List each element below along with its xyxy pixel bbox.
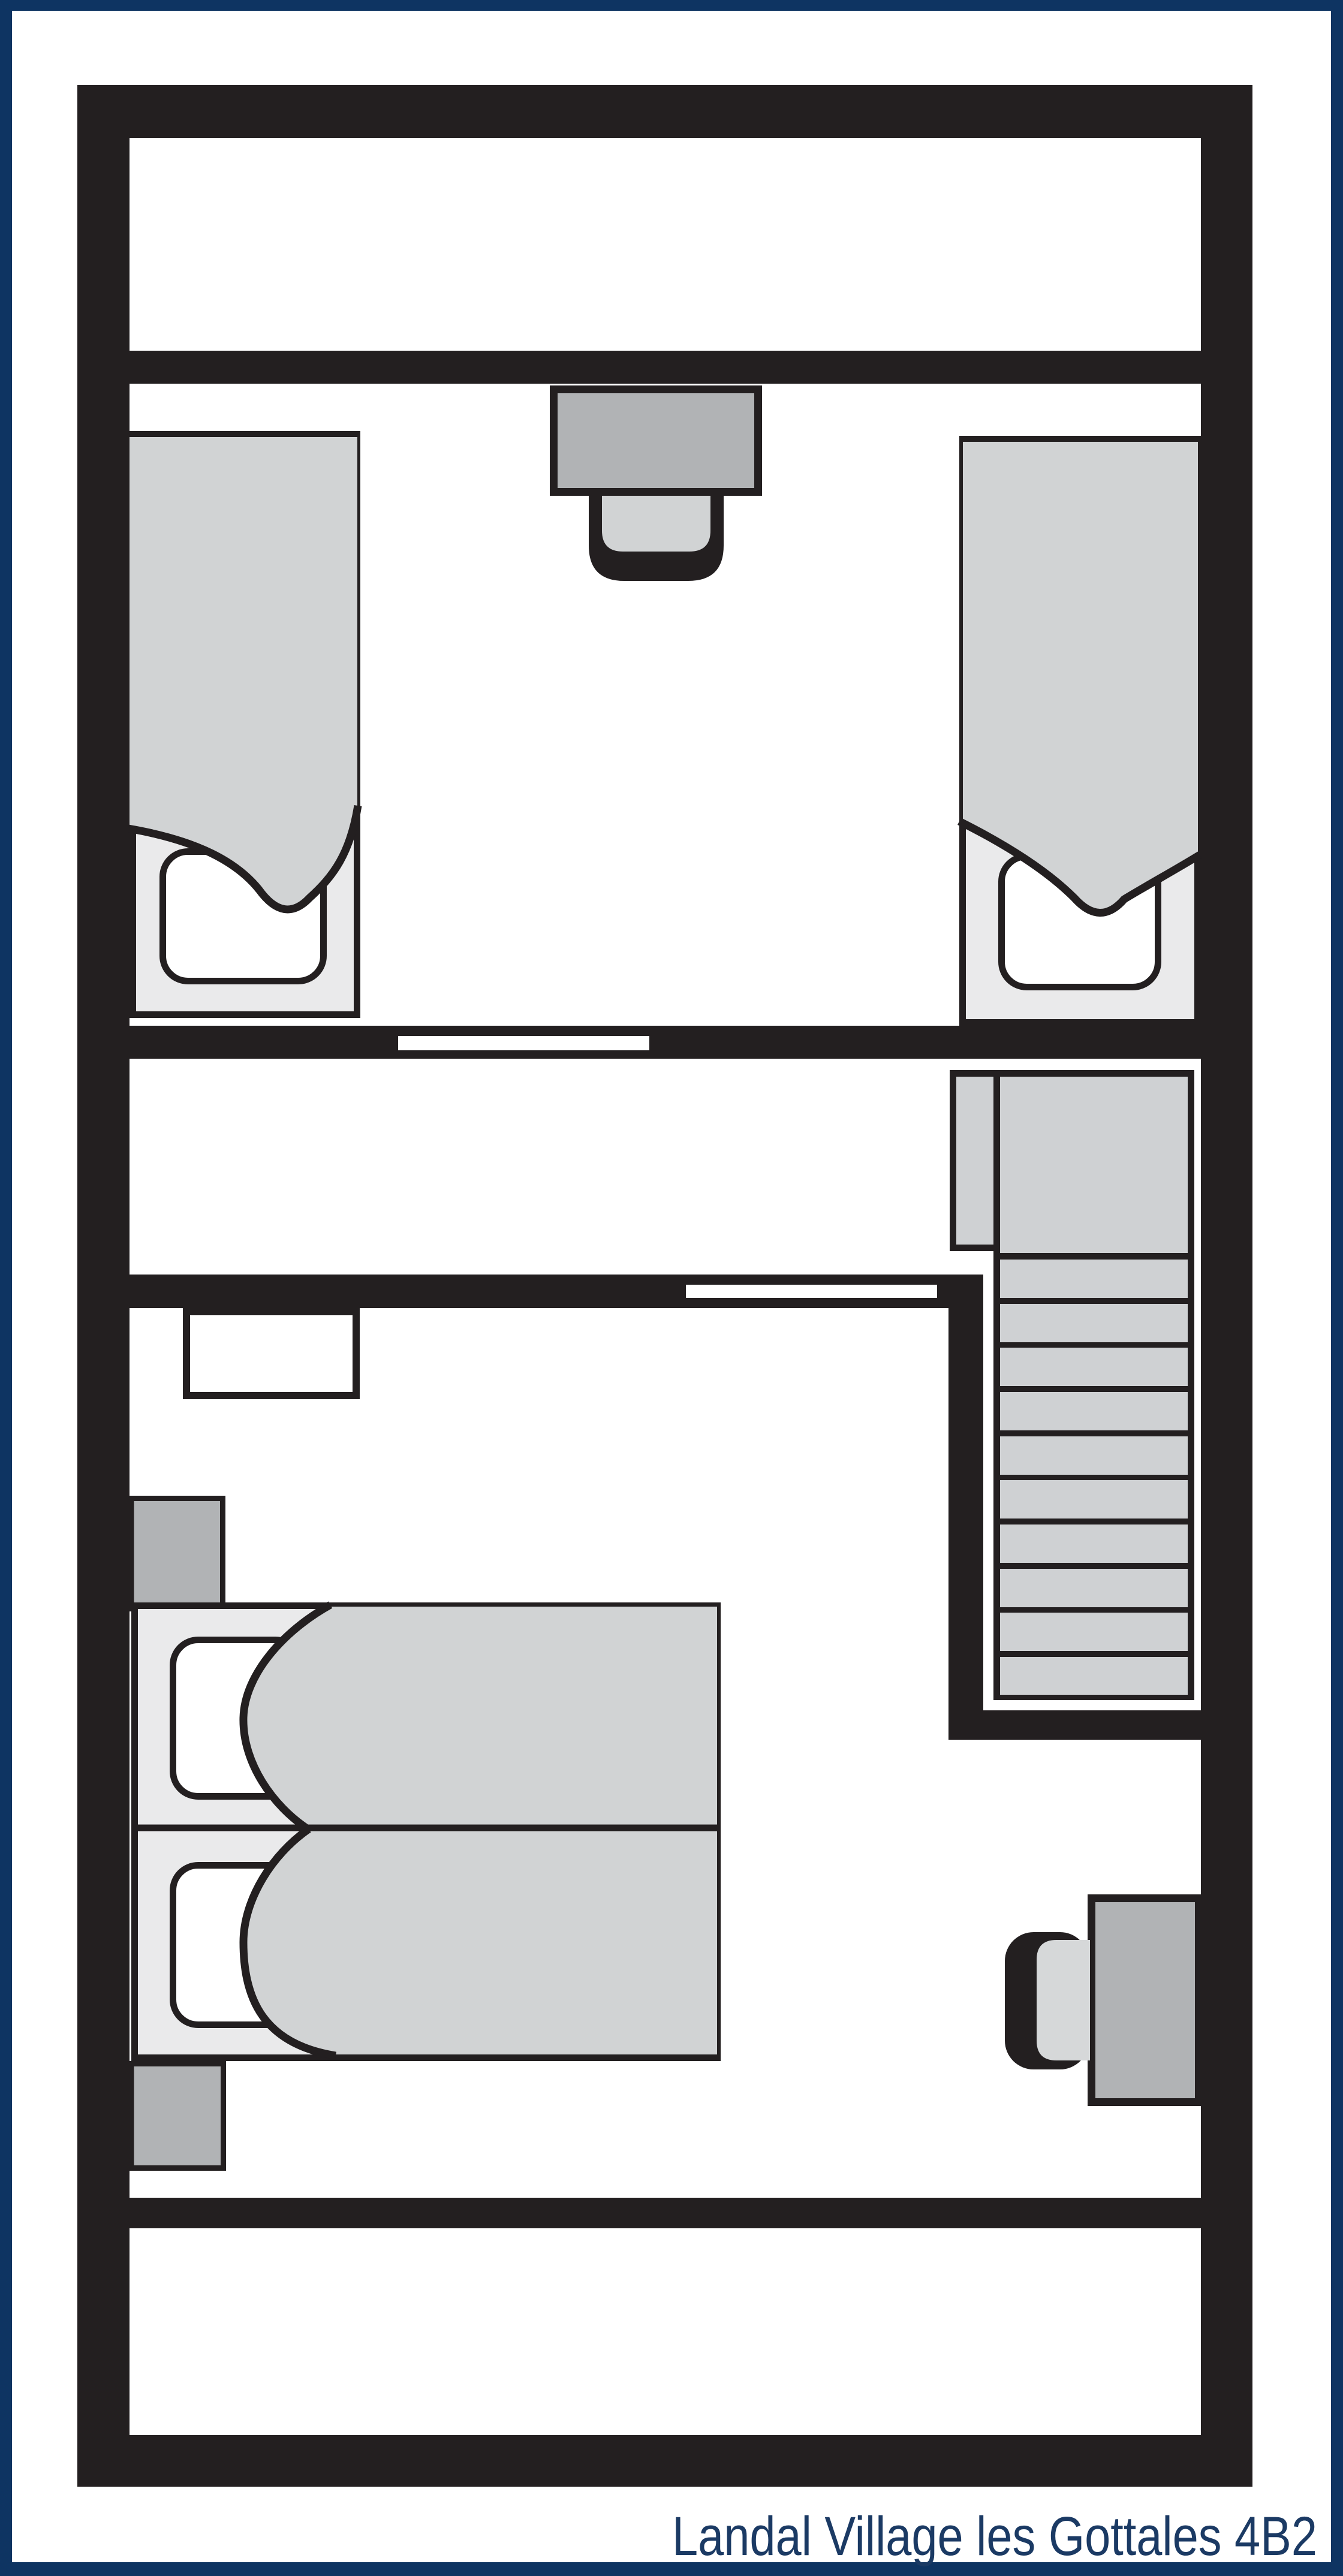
svg-text:Landal Village les Gottales 4B: Landal Village les Gottales 4B2 bbox=[672, 2506, 1317, 2567]
